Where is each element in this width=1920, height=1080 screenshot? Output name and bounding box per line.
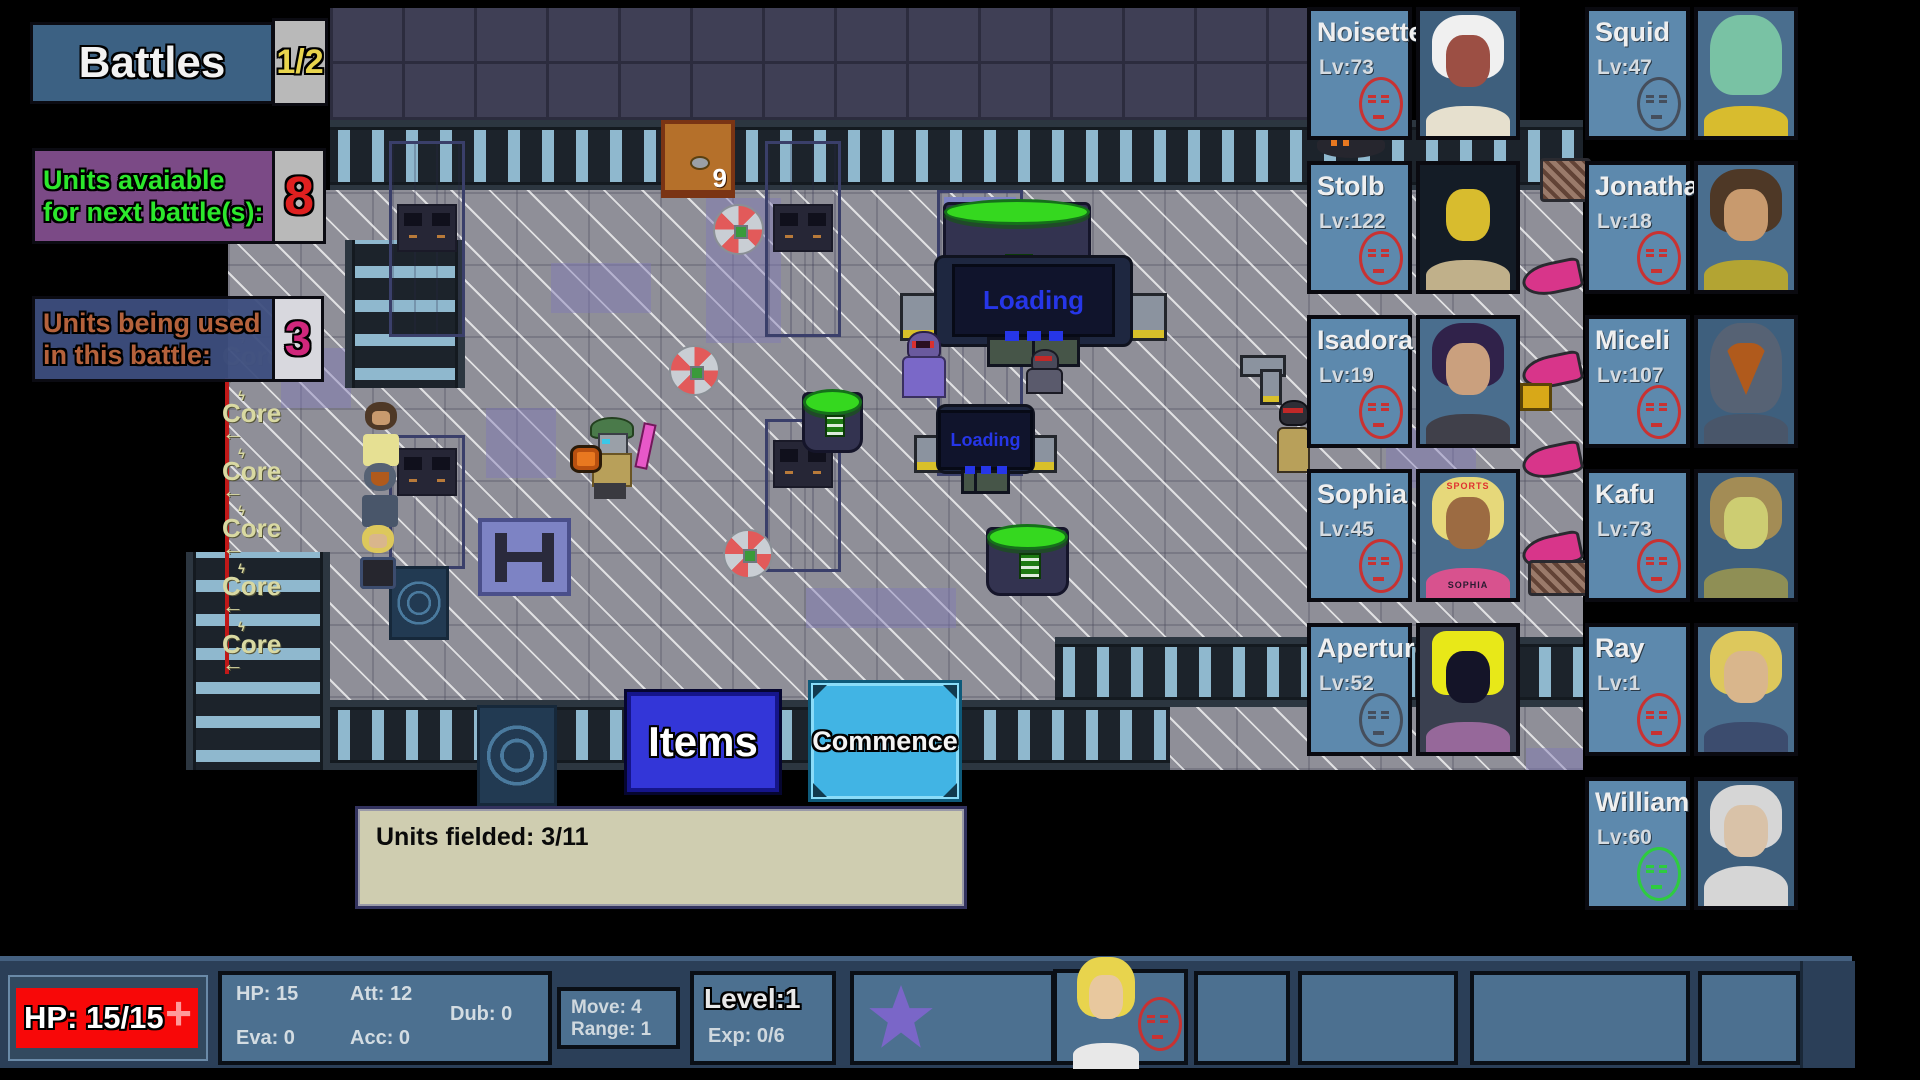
roster-card-william[interactable]: William Lv:60 [1585,777,1798,910]
game-screen: ϟCore← ϟCore← ϟCore← ϟCore← ϟCore← ϟCore… [0,0,1920,1080]
unit-name: Stolb [1317,171,1408,202]
unit-portrait[interactable]: SPORTS SOPHIA [1416,469,1520,602]
mood-face-icon [1637,77,1681,131]
wall-tiles [330,8,1330,120]
left-arrow-icon: ← [222,480,242,502]
treasure-chest[interactable]: 9 [661,120,735,198]
roster-card-sophia[interactable]: Sophia Lv:45 SPORTS SOPHIA [1307,469,1520,602]
player-unit-miceli[interactable] [357,463,403,527]
unit-name: Ray [1595,633,1686,664]
unit-level: Lv:60 [1597,826,1686,850]
robot-arm [1240,355,1284,403]
unit-level: Lv:107 [1597,364,1686,388]
units-available-line2: for next battle(s): [43,196,264,228]
goblin-enemy[interactable] [582,417,640,499]
portrait-body [1704,106,1788,140]
roster-card-jonathan[interactable]: Jonathan Lv:18 [1585,161,1798,294]
unit-nameplate[interactable]: Stolb Lv:122 [1307,161,1412,294]
mech-screen: Loading [938,410,1033,470]
portrait-shirt-text: SOPHIA [1420,580,1516,590]
unit-name: Sophia [1317,479,1408,510]
bar-end-filler [1800,961,1855,1068]
portrait-body [1073,1043,1139,1069]
portrait-body [1704,722,1788,756]
portrait-face [1724,189,1768,241]
mood-face-icon [1359,231,1403,285]
chest-lock [690,156,710,170]
unit-name: Miceli [1595,325,1686,356]
mood-face-icon [1359,77,1403,131]
left-arrow-icon: ← [222,422,242,444]
commence-button[interactable]: Commence [808,680,962,802]
loading-dots [1005,331,1019,341]
unit-level: Lv:1 [1597,672,1686,696]
unit-nameplate[interactable]: Miceli Lv:107 [1585,315,1690,448]
unit-portrait[interactable] [1694,161,1798,294]
portrait-face [1724,651,1768,703]
pillar-tower [765,141,841,337]
core-marker: ϟCore← [222,620,294,675]
core-marker: ϟCore← [222,504,294,559]
unit-nameplate[interactable]: Aperture Lv:52 [1307,623,1412,756]
unit-portrait[interactable] [1694,777,1798,910]
soldier-body [1026,368,1063,394]
stat-range: Range: 1 [571,1019,676,1041]
roster-card-squid[interactable]: Squid Lv:47 [1585,7,1798,140]
unit-level: Lv:52 [1319,672,1408,696]
soldier-body [902,356,946,398]
items-button[interactable]: Items [627,692,779,792]
floor-highlight [806,588,956,628]
loading-mech[interactable]: Loading [918,404,1053,494]
unit-nameplate[interactable]: Jonathan Lv:18 [1585,161,1690,294]
unit-nameplate[interactable]: Noisette Lv:73 [1307,7,1412,140]
unit-nameplate[interactable]: Sophia Lv:45 [1307,469,1412,602]
robot-face [773,204,833,252]
vat-screen [1019,553,1041,579]
drone-enemy[interactable] [669,345,720,396]
hp-value: HP: 15/15 [24,1000,164,1036]
portrait-beard [1704,866,1788,910]
unit-nameplate[interactable]: Kafu Lv:73 [1585,469,1690,602]
unit-portrait[interactable] [1416,7,1520,140]
goblin-shield [570,445,602,473]
chest-count: 9 [713,163,727,194]
basket-sprite [1540,158,1591,202]
yellow-box-sprite [1520,383,1552,411]
unit-name: William [1595,787,1686,818]
mood-face-icon [1359,539,1403,593]
corner-decoration [943,685,957,699]
soldier-body [1277,427,1310,473]
hp-panel: HP: 15/15 + [8,975,208,1061]
portrait-body [1426,414,1510,448]
unit-body [360,557,396,589]
selected-unit-sprite [1067,957,1145,1065]
roster-card-kafu[interactable]: Kafu Lv:73 [1585,469,1798,602]
unit-nameplate[interactable]: Isadora Lv:19 [1307,315,1412,448]
mood-face-icon [1637,385,1681,439]
unit-portrait[interactable] [1416,315,1520,448]
unit-nameplate[interactable]: William Lv:60 [1585,777,1690,910]
stat-hp: HP: 15 [236,983,298,1006]
units-in-battle-counter: 3 [272,296,324,382]
dark-soldier-enemy[interactable] [1277,400,1310,473]
units-available-panel: Units avaiable for next battle(s): [32,148,282,244]
floor-highlight [1526,748,1583,770]
empty-slot-panel [1298,971,1458,1065]
portrait-body [1704,568,1788,602]
portrait-body [1426,722,1510,756]
bottom-status-bar: HP: 15/15 + HP: 15 Att: 12 Dub: 0 Eva: 0… [0,956,1852,1068]
empty-slot-panel [1194,971,1290,1065]
portrait-face [1446,35,1490,87]
portrait-hat-text: SPORTS [1420,481,1516,491]
soldier-visor [1035,356,1052,361]
green-vat-machine[interactable] [802,392,863,453]
mood-face-icon [1138,997,1182,1051]
portrait-body [1704,260,1788,294]
supply-crate [478,518,571,596]
portrait-face [1089,975,1123,1019]
heal-plus-icon[interactable]: + [165,990,192,1036]
units-available-counter: 8 [272,148,326,244]
units-in-battle-panel: Units being used in this battle: [32,296,281,382]
unit-level: Lv:73 [1319,56,1408,80]
vat-glow [803,389,862,415]
mood-face-icon [1359,693,1403,747]
soldier-visor [912,341,934,348]
level-panel: Level:1 Exp: 0/6 [690,971,836,1065]
units-in-battle-line2: in this battle: [43,339,211,371]
portrait-face [1446,343,1490,395]
left-arrow-icon: ← [222,537,242,559]
robot-face [397,204,457,252]
unit-portrait[interactable] [1694,469,1798,602]
battles-counter: 1/2 [272,18,328,106]
portrait-body [1704,414,1788,448]
soldier-visor [1283,408,1303,413]
units-fielded-status-box: Units fielded: 3/11 [355,806,967,909]
mech-screen: Loading [952,264,1115,337]
unit-level: Lv:19 [1319,364,1408,388]
goblin-eye [602,439,610,444]
battles-label: Battles [79,38,226,88]
player-unit-ray[interactable] [355,525,401,589]
corner-decoration [813,783,827,797]
unit-level: Lv:45 [1319,518,1408,542]
corner-decoration [813,685,827,699]
unit-portrait[interactable] [1694,623,1798,756]
unit-portrait[interactable] [1694,7,1798,140]
unit-level: Lv:47 [1597,56,1686,80]
unit-portrait[interactable] [1416,161,1520,294]
loading-dots [965,466,975,474]
units-available-line1: Units avaiable [43,164,225,196]
movement-panel: Move: 4 Range: 1 [557,987,680,1049]
stat-dub: Dub: 0 [450,1003,512,1026]
roster-card-isadora[interactable]: Isadora Lv:19 [1307,315,1520,448]
roster-card-ray[interactable]: Ray Lv:1 [1585,623,1798,756]
gray-soldier-enemy[interactable] [1026,349,1063,394]
portrait-body [1426,260,1510,294]
teleport-pad[interactable] [477,705,557,806]
unit-face [369,534,387,548]
mood-face-icon [1637,231,1681,285]
empty-slot-panel [1470,971,1690,1065]
stat-eva: Eva: 0 [236,1027,295,1050]
floor-highlight [486,408,556,478]
exp-value: Exp: 0/6 [708,1025,832,1048]
floor-highlight [551,263,651,313]
core-marker: ϟCore← [222,389,294,444]
roster-card-aperture[interactable]: Aperture Lv:52 [1307,623,1520,756]
vat-glow [944,199,1090,225]
unit-nameplate[interactable]: Squid Lv:47 [1585,7,1690,140]
pillar-tower [389,141,465,337]
stats-panel: HP: 15 Att: 12 Dub: 0 Eva: 0 Acc: 0 [218,971,552,1065]
core-marker: ϟCore← [222,562,294,617]
unit-name: Isadora [1317,325,1408,356]
unit-level: Lv:18 [1597,210,1686,234]
empty-slot-panel [1698,971,1800,1065]
units-in-battle-line1: Units being used [43,307,261,339]
unit-portrait[interactable] [1416,623,1520,756]
basket-sprite [1528,560,1589,596]
unit-nameplate[interactable]: Ray Lv:1 [1585,623,1690,756]
mood-face-icon [1637,693,1681,747]
robot-face [397,448,457,496]
stat-move: Move: 4 [571,997,676,1019]
soldier-helmet [1279,400,1309,426]
stat-att: Att: 12 [350,983,412,1006]
unit-portrait[interactable] [1694,315,1798,448]
stat-acc: Acc: 0 [350,1027,410,1050]
left-arrow-icon: ← [222,653,242,675]
roster-card-stolb[interactable]: Stolb Lv:122 [1307,161,1520,294]
unit-name: Squid [1595,17,1686,48]
roster-card-noisette[interactable]: Noisette Lv:73 [1307,7,1520,140]
unit-face [371,472,389,486]
vat-glow [987,524,1068,550]
affinity-panel [850,971,1055,1065]
mood-face-icon [1637,847,1681,901]
unit-body [363,434,399,466]
drone-enemy[interactable] [713,204,764,255]
drone-enemy[interactable] [723,529,773,579]
player-unit-jonathan[interactable] [358,402,404,466]
portrait-face [1446,651,1490,703]
vat-screen [825,415,845,437]
left-arrow-icon: ← [222,595,242,617]
portrait-face [1724,805,1768,857]
unit-name: Jonathan [1595,171,1686,202]
unit-level: Lv:122 [1319,210,1408,234]
hp-bar: HP: 15/15 + [16,988,198,1048]
unit-name: Aperture [1317,633,1408,664]
battles-header: Battles [30,22,274,104]
goblin-legs [594,483,626,499]
unit-body [362,495,398,527]
portrait-face [1724,497,1768,549]
green-vat-machine[interactable] [986,527,1069,596]
portrait-face [1446,189,1490,241]
corner-decoration [943,783,957,797]
mood-face-icon [1637,539,1681,593]
selected-unit-panel [1053,969,1188,1065]
star-icon [868,985,934,1051]
level-value: Level:1 [704,983,832,1015]
unit-name: Kafu [1595,479,1686,510]
core-marker: ϟCore← [222,447,294,502]
portrait-face [1446,497,1490,549]
unit-level: Lv:73 [1597,518,1686,542]
portrait-face [1724,35,1768,87]
roster-card-miceli[interactable]: Miceli Lv:107 [1585,315,1798,448]
portrait-body [1426,106,1510,140]
unit-face [372,411,390,425]
mood-face-icon [1359,385,1403,439]
mech-leg [974,470,1010,494]
purple-soldier-enemy[interactable] [902,331,946,398]
unit-name: Noisette [1317,17,1408,48]
